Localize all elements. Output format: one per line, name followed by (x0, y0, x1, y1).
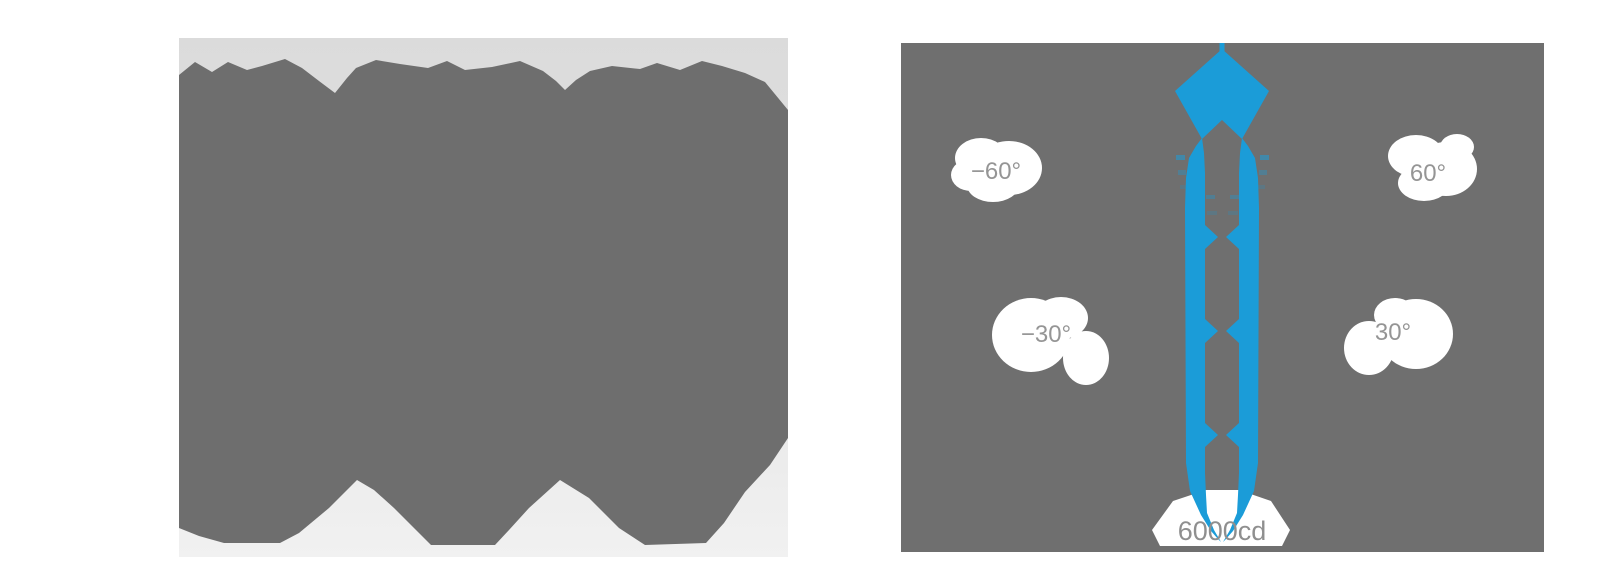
angle-label-minus-30: −30° (1021, 321, 1071, 348)
beam-head-pentagon (1175, 49, 1269, 139)
beam-left-leg (1185, 138, 1221, 542)
page: −60° 60° −30° 30° 6000cd (0, 0, 1600, 576)
product-silhouette (179, 59, 788, 545)
beam-distribution-diagram: −60° 60° −30° 30° 6000cd (901, 43, 1544, 552)
beam-shape (1175, 43, 1269, 542)
angle-label-plus-60: 60° (1410, 160, 1446, 187)
angle-label-minus-60: −60° (971, 158, 1021, 185)
abstract-product-image (179, 38, 788, 557)
angle-label-plus-30: 30° (1375, 319, 1411, 346)
intensity-label: 6000cd (1178, 516, 1267, 546)
product-image-panel (179, 38, 788, 557)
beam-right-leg (1223, 138, 1259, 542)
beam-diagram-panel: −60° 60° −30° 30° 6000cd (901, 43, 1544, 552)
